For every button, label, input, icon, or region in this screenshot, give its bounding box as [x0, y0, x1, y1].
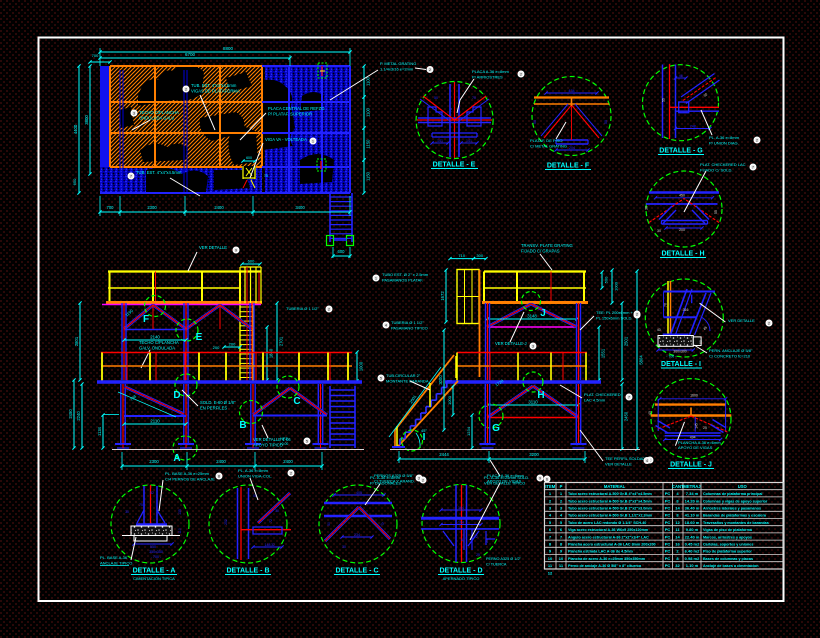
svg-text:1000: 1000 — [447, 395, 452, 405]
svg-text:Piso de plataforma superior: Piso de plataforma superior — [703, 550, 752, 554]
svg-text:1134: 1134 — [97, 426, 102, 436]
svg-text:350x350: 350x350 — [149, 550, 163, 554]
svg-text:1000: 1000 — [359, 361, 364, 371]
svg-text:TUB. EST. 4"x4"x4.5mm: TUB. EST. 4"x4"x4.5mm — [136, 170, 182, 175]
svg-text:DETALLE - D: DETALLE - D — [439, 568, 482, 575]
svg-text:Perno de anclaje A-36 Ø 5/8" x: Perno de anclaje A-36 Ø 5/8" x 8" c/tuer… — [568, 564, 642, 568]
svg-text:200: 200 — [679, 228, 685, 232]
svg-text:75: 75 — [139, 503, 143, 507]
svg-text:CANT: CANT — [672, 484, 684, 489]
svg-text:600: 600 — [246, 156, 252, 160]
svg-text:30: 30 — [275, 509, 279, 513]
svg-text:748: 748 — [690, 124, 696, 128]
svg-text:1150: 1150 — [366, 139, 371, 149]
svg-text:148: 148 — [265, 543, 271, 547]
svg-text:METRAJ: METRAJ — [683, 484, 701, 489]
svg-text:TUB.CIRCULAR 2": TUB.CIRCULAR 2" — [386, 373, 421, 378]
svg-text:1672: 1672 — [440, 291, 445, 301]
svg-text:Travesaños y montantes de bara: Travesaños y montantes de barandas — [703, 521, 769, 525]
svg-text:TUBO EST. Ø 2" x 2.5mm: TUBO EST. Ø 2" x 2.5mm — [382, 272, 429, 277]
svg-text:5: 5 — [380, 376, 382, 380]
svg-text:12: 12 — [675, 520, 680, 525]
svg-text:PLATAF. DE PISO: PLATAF. DE PISO — [530, 138, 563, 143]
svg-text:PL. A-36 e=8mm: PL. A-36 e=8mm — [370, 475, 401, 480]
svg-text:2110: 2110 — [150, 419, 160, 424]
svg-text:DETALLE - F: DETALLE - F — [547, 163, 590, 170]
svg-text:DETALLE - C: DETALLE - C — [335, 568, 378, 575]
svg-text:I: I — [423, 432, 426, 443]
svg-text:3200: 3200 — [529, 452, 539, 457]
svg-text:C: C — [293, 396, 300, 407]
svg-text:46: 46 — [679, 74, 683, 78]
svg-text:204: 204 — [569, 146, 575, 150]
svg-text:14.20 m: 14.20 m — [685, 498, 700, 503]
svg-text:APERNADO TIPICO: APERNADO TIPICO — [443, 576, 480, 581]
svg-text:P/ DIAGONALES: P/ DIAGONALES — [370, 480, 401, 485]
svg-text:- 700 -: - 700 - — [666, 355, 677, 359]
svg-text:2: 2 — [429, 68, 431, 72]
svg-text:Angulo acero estructural A-36: Angulo acero estructural A-36 2"x2"x1/4"… — [568, 535, 649, 539]
svg-text:16: 16 — [675, 542, 680, 547]
svg-text:2701: 2701 — [279, 336, 284, 346]
svg-text:1234: 1234 — [466, 426, 471, 436]
svg-text:3400: 3400 — [295, 205, 305, 210]
svg-text:TRANSV. PLATE GRATING: TRANSV. PLATE GRATING — [521, 243, 573, 248]
svg-text:1100: 1100 — [366, 107, 371, 117]
svg-text:J: J — [540, 308, 546, 319]
svg-text:70: 70 — [663, 303, 667, 307]
svg-text:2: 2 — [520, 72, 522, 76]
svg-text:234: 234 — [354, 533, 360, 537]
svg-text:PLACA CENTRAL DE REFZO.: PLACA CENTRAL DE REFZO. — [268, 106, 326, 111]
svg-text:494: 494 — [690, 436, 696, 440]
svg-text:8: 8 — [461, 538, 463, 542]
svg-text:18.60 m: 18.60 m — [685, 520, 700, 525]
svg-text:TUB. EST. 4"x4"x4.5mm: TUB. EST. 4"x4"x4.5mm — [191, 83, 237, 88]
svg-text:Columnas de plataforma princip: Columnas de plataforma principal — [703, 492, 762, 496]
svg-text:50: 50 — [699, 340, 703, 344]
svg-text:200: 200 — [229, 342, 236, 347]
svg-text:2: 2 — [636, 312, 638, 316]
svg-text:DETALLE - A: DETALLE - A — [133, 568, 176, 575]
svg-text:B: B — [239, 420, 246, 431]
svg-text:PC: PC — [665, 534, 671, 539]
svg-text:0.45 m2: 0.45 m2 — [685, 542, 700, 547]
svg-text:30: 30 — [342, 545, 346, 549]
svg-text:2450: 2450 — [68, 409, 73, 419]
svg-text:Columnas y vigas de apoyo supe: Columnas y vigas de apoyo superior — [703, 499, 768, 503]
svg-text:4: 4 — [385, 323, 387, 327]
svg-text:GALV. ONDULADA: GALV. ONDULADA — [139, 345, 175, 350]
svg-text:76: 76 — [449, 108, 453, 112]
svg-text:UNION VIGA-COL.: UNION VIGA-COL. — [238, 473, 272, 478]
svg-text:Marcos, arriostres y apoyos: Marcos, arriostres y apoyos — [703, 535, 752, 539]
svg-text:EN PERFILES: EN PERFILES — [200, 405, 227, 410]
svg-text:41.10 m: 41.10 m — [685, 513, 700, 518]
svg-text:30: 30 — [645, 206, 649, 210]
svg-text:2: 2 — [290, 471, 292, 475]
svg-text:VIGAS DE PLATAFORMA: VIGAS DE PLATAFORMA — [191, 88, 240, 93]
svg-text:ITEM: ITEM — [545, 484, 556, 489]
svg-text:2300: 2300 — [147, 205, 157, 210]
svg-text:C/ TUERCA: C/ TUERCA — [486, 562, 507, 566]
svg-text:6.40 m2: 6.40 m2 — [685, 549, 700, 554]
svg-text:PERN. ANCLAJE Ø 5/8": PERN. ANCLAJE Ø 5/8" — [709, 348, 753, 353]
svg-text:1: 1 — [312, 139, 314, 143]
svg-text:MATERIAL: MATERIAL — [604, 484, 626, 489]
svg-text:H: H — [537, 390, 544, 401]
svg-text:300x300: 300x300 — [673, 350, 686, 354]
svg-text:PL 150x6mm SOLD.: PL 150x6mm SOLD. — [596, 315, 633, 320]
svg-text:P/ PLATAF. SUPERIOR: P/ PLATAF. SUPERIOR — [268, 111, 312, 116]
svg-text:Plancha de acero A-36 e=25mm 3: Plancha de acero A-36 e=25mm 350x350mm — [568, 557, 646, 561]
svg-text:650: 650 — [72, 178, 77, 185]
svg-text:Barandas de plataformas y esca: Barandas de plataformas y escalera — [703, 514, 767, 518]
svg-text:PERNO A325 Ø 1/2": PERNO A325 Ø 1/2" — [486, 557, 522, 561]
svg-text:TEE: PL 200x6mm +: TEE: PL 200x6mm + — [596, 310, 634, 315]
svg-text:141: 141 — [466, 139, 472, 143]
svg-text:DETALLE - G: DETALLE - G — [659, 148, 703, 155]
svg-text:VER DETALLE 1-06: VER DETALLE 1-06 — [253, 437, 291, 442]
svg-text:ANCLAJE TIPICO: ANCLAJE TIPICO — [100, 560, 132, 565]
svg-text:P/ UNION DIAG.: P/ UNION DIAG. — [709, 140, 739, 145]
svg-text:14: 14 — [675, 506, 680, 511]
svg-text:141: 141 — [437, 139, 443, 143]
svg-text:VER DETALLE-J: VER DETALLE-J — [495, 341, 527, 346]
svg-text:TEE PERFIL SOLDADO: TEE PERFIL SOLDADO — [605, 456, 648, 461]
svg-text:8800: 8800 — [223, 46, 234, 51]
svg-text:7: 7 — [628, 395, 630, 399]
svg-text:E: E — [196, 332, 203, 343]
svg-text:1: 1 — [375, 276, 377, 280]
svg-text:PLAT. CHECKERED: PLAT. CHECKERED — [584, 392, 621, 397]
svg-text:32: 32 — [675, 563, 680, 568]
svg-text:1000: 1000 — [614, 281, 619, 291]
svg-text:70: 70 — [472, 96, 476, 100]
svg-text:3000: 3000 — [438, 375, 443, 385]
svg-text:Tubo acero estructural A-500 G: Tubo acero estructural A-500 Gr.B 4"x4"x… — [568, 492, 653, 496]
svg-text:Tubo acero estructural A-500 G: Tubo acero estructural A-500 Gr.B 3"x3"x… — [568, 499, 653, 503]
svg-text:Vigas de piso de plataforma: Vigas de piso de plataforma — [703, 528, 753, 532]
svg-text:PC: PC — [665, 498, 671, 503]
svg-text:PC: PC — [665, 542, 671, 547]
svg-text:Viga acero estructural A-36 W6: Viga acero estructural A-36 W6x9 250x120… — [568, 528, 649, 532]
svg-text:500: 500 — [604, 276, 609, 283]
svg-text:G: G — [492, 423, 500, 434]
svg-text:9: 9 — [235, 248, 237, 252]
svg-text:25: 25 — [476, 553, 480, 557]
svg-text:TUBERIA Ø 1 1/2": TUBERIA Ø 1 1/2" — [286, 306, 319, 311]
svg-text:PLAT. CHECKERED LAC: PLAT. CHECKERED LAC — [700, 162, 746, 167]
svg-text:30: 30 — [125, 510, 129, 514]
svg-text:135: 135 — [178, 509, 182, 515]
svg-text:6700: 6700 — [185, 52, 196, 57]
svg-text:55: 55 — [714, 210, 718, 214]
svg-text:A: A — [173, 453, 180, 464]
svg-text:3: 3 — [133, 111, 135, 115]
svg-text:DETALLE - E: DETALLE - E — [433, 162, 476, 169]
svg-text:2400: 2400 — [283, 459, 293, 464]
svg-text:200: 200 — [213, 345, 220, 350]
svg-text:7: 7 — [752, 165, 754, 169]
svg-text:50: 50 — [533, 120, 537, 124]
svg-text:SOLD. E-60 Ø 1/8": SOLD. E-60 Ø 1/8" — [200, 400, 236, 405]
svg-text:2: 2 — [328, 307, 330, 311]
svg-text:2: 2 — [422, 478, 424, 482]
svg-text:9: 9 — [539, 476, 541, 480]
svg-text:600: 600 — [248, 259, 255, 264]
svg-text:Anclaje de bases a cimentacion: Anclaje de bases a cimentacion — [703, 564, 759, 568]
svg-text:2400: 2400 — [216, 459, 226, 464]
svg-text:PC: PC — [665, 563, 671, 568]
svg-text:1.10 m: 1.10 m — [686, 563, 699, 568]
svg-text:C/ METAL GRATING: C/ METAL GRATING — [530, 143, 567, 148]
svg-text:0.98 m2: 0.98 m2 — [685, 556, 700, 561]
svg-text:P. METAL GRATING: P. METAL GRATING — [380, 61, 416, 66]
svg-text:1150: 1150 — [366, 171, 371, 181]
svg-text:APOYO DE VIGAS: APOYO DE VIGAS — [678, 445, 713, 450]
svg-text:F: F — [143, 314, 149, 325]
svg-text:DETALLE - B: DETALLE - B — [226, 568, 269, 575]
svg-text:FIJADO C/ GRAPAS: FIJADO C/ GRAPAS — [521, 248, 560, 253]
svg-text:PC: PC — [665, 549, 671, 554]
svg-text:PASAMANO TIPICO: PASAMANO TIPICO — [391, 325, 428, 330]
svg-text:FIJADO C/ SOLD.: FIJADO C/ SOLD. — [700, 167, 732, 172]
svg-text:Cartelas, soportes y uniones: Cartelas, soportes y uniones — [703, 543, 753, 547]
svg-text:22.40 m: 22.40 m — [685, 534, 700, 539]
svg-text:Tubo acero estructural A-500 G: Tubo acero estructural A-500 Gr.B 2"x2"x… — [568, 507, 653, 511]
svg-text:Tubo acero estructural A-500 G: Tubo acero estructural A-500 Gr.B 1.1/2"… — [568, 514, 653, 518]
svg-text:Tubo de acero LAC redondo Ø 1.: Tubo de acero LAC redondo Ø 1.1/4" SCH-4… — [568, 521, 646, 525]
svg-text:2: 2 — [768, 321, 770, 325]
svg-text:Bases de columnas y placas: Bases de columnas y placas — [703, 557, 753, 561]
svg-text:3: 3 — [532, 344, 534, 348]
svg-text:25: 25 — [485, 539, 489, 543]
svg-text:2444: 2444 — [439, 452, 449, 457]
svg-text:3800: 3800 — [84, 115, 89, 125]
svg-text:- 700 -: - 700 - — [151, 555, 162, 559]
svg-text:40: 40 — [657, 328, 661, 332]
svg-text:VER DETALLE: VER DETALLE — [605, 461, 632, 466]
svg-text:PLACA A-36 e=6mm: PLACA A-36 e=6mm — [487, 473, 524, 478]
svg-text:164: 164 — [458, 520, 464, 524]
svg-text:VER DETALLE: VER DETALLE — [728, 318, 755, 323]
svg-text:2400: 2400 — [214, 205, 224, 210]
svg-text:APOYO TIPICO: APOYO TIPICO — [253, 442, 284, 447]
svg-text:316: 316 — [683, 308, 689, 312]
svg-text:8: 8 — [218, 474, 220, 478]
svg-text:PC: PC — [665, 513, 671, 518]
svg-text:5804: 5804 — [639, 355, 644, 365]
svg-text:145: 145 — [695, 423, 699, 429]
svg-text:252: 252 — [224, 519, 228, 525]
svg-text:PC: PC — [665, 506, 671, 511]
svg-text:2: 2 — [185, 87, 187, 91]
svg-text:110: 110 — [178, 528, 182, 534]
svg-text:PC: PC — [665, 520, 671, 525]
svg-text:2: 2 — [756, 138, 758, 142]
svg-text:32: 32 — [271, 543, 275, 547]
svg-text:PC: PC — [665, 491, 671, 496]
svg-text:LAC 4.5mm: LAC 4.5mm — [584, 397, 606, 402]
svg-text:1600: 1600 — [690, 394, 698, 398]
svg-text:5: 5 — [306, 439, 308, 443]
svg-text:50: 50 — [604, 120, 608, 124]
svg-text:14: 14 — [675, 534, 680, 539]
svg-text:MONTANTE BARANDA: MONTANTE BARANDA — [386, 378, 429, 383]
svg-text:Arriostres laterales y pasaman: Arriostres laterales y pasamanos — [703, 507, 761, 511]
svg-text:36.40 m: 36.40 m — [685, 506, 700, 511]
svg-text:DETALLE - H: DETALLE - H — [661, 251, 704, 258]
svg-text:TECHO C/PLANCHA: TECHO C/PLANCHA — [139, 340, 179, 345]
svg-text:D: D — [173, 390, 180, 401]
svg-text:PC: PC — [665, 556, 671, 561]
svg-text:TECHO C/PLANCHA: TECHO C/PLANCHA — [139, 110, 179, 115]
svg-text:C/ CONCRETO fc=210: C/ CONCRETO fc=210 — [709, 353, 751, 358]
svg-text:APOYO DE VIGAS: APOYO DE VIGAS — [487, 478, 522, 483]
svg-text:710: 710 — [458, 253, 465, 258]
svg-text:6: 6 — [546, 477, 548, 481]
svg-text:3148: 3148 — [527, 314, 537, 319]
svg-text:2450: 2450 — [624, 411, 629, 421]
svg-text:2501: 2501 — [624, 336, 629, 346]
svg-text:PL. A-36 e=8mm: PL. A-36 e=8mm — [238, 468, 269, 473]
svg-text:450: 450 — [679, 194, 685, 198]
svg-text:52: 52 — [150, 491, 154, 495]
svg-text:700: 700 — [92, 53, 99, 58]
svg-text:10: 10 — [559, 556, 564, 561]
svg-text:PL. BASE A-36: PL. BASE A-36 — [100, 555, 128, 560]
svg-text:164: 164 — [458, 506, 464, 510]
svg-text:7: 7 — [130, 174, 132, 178]
svg-text:PL. BASE A-36 e=25mm: PL. BASE A-36 e=25mm — [165, 471, 210, 476]
svg-text:1.1/4x3/16 e=2mm: 1.1/4x3/16 e=2mm — [380, 66, 414, 71]
svg-text:550: 550 — [150, 545, 156, 549]
svg-text:600: 600 — [338, 249, 346, 254]
svg-text:2240: 2240 — [76, 411, 81, 421]
svg-text:2801: 2801 — [74, 336, 79, 346]
svg-text:40: 40 — [648, 411, 652, 415]
svg-text:12: 12 — [548, 570, 553, 575]
svg-text:PLACA A-36 e=8mm: PLACA A-36 e=8mm — [472, 69, 509, 74]
svg-text:300: 300 — [476, 253, 483, 258]
svg-text:P: P — [560, 484, 563, 489]
svg-text:4400: 4400 — [73, 124, 78, 134]
svg-text:9.80 m: 9.80 m — [686, 527, 699, 532]
svg-text:Plancha acero estructural A-36: Plancha acero estructural A-36 LAC 8mm 2… — [568, 543, 656, 547]
svg-text:1551: 1551 — [601, 348, 606, 358]
svg-text:50: 50 — [434, 96, 438, 100]
svg-text:72: 72 — [269, 519, 273, 523]
svg-text:PASAMANOS PLATAF.: PASAMANOS PLATAF. — [382, 277, 423, 282]
svg-text:2300: 2300 — [149, 459, 159, 464]
svg-text:TUBERIA Ø 1 1/2": TUBERIA Ø 1 1/2" — [391, 320, 424, 325]
svg-text:Plancha estriada LAC A-36 de 4: Plancha estriada LAC A-36 de 4.5mm — [568, 550, 634, 554]
svg-text:DETALLE - I: DETALLE - I — [661, 361, 701, 368]
svg-text:ONDULADA GALV.: ONDULADA GALV. — [139, 115, 175, 120]
svg-text:4: 4 — [646, 459, 648, 463]
svg-text:25: 25 — [703, 426, 707, 430]
svg-text:VER DETALLE: VER DETALLE — [199, 245, 227, 250]
svg-text:75: 75 — [264, 174, 268, 178]
svg-text:434: 434 — [568, 89, 574, 93]
svg-text:CIMENTACION TIPICA: CIMENTACION TIPICA — [133, 576, 175, 581]
svg-text:C/4 PERNOS DE ANCLAJE: C/4 PERNOS DE ANCLAJE — [165, 476, 215, 481]
svg-text:30: 30 — [657, 229, 661, 233]
svg-text:700: 700 — [107, 205, 115, 210]
svg-text:DETALLE - J: DETALLE - J — [670, 462, 712, 469]
svg-text:PL. A-36 e=8mm: PL. A-36 e=8mm — [709, 135, 740, 140]
svg-text:USO: USO — [738, 484, 748, 489]
svg-text:PC: PC — [665, 527, 671, 532]
svg-text:10: 10 — [548, 556, 553, 561]
svg-text:405: 405 — [356, 491, 362, 495]
svg-text:7.34 m: 7.34 m — [686, 491, 699, 496]
svg-text:P/ ARRIOSTRES: P/ ARRIOSTRES — [472, 74, 503, 79]
svg-text:VIGA VA - VOLTEADA: VIGA VA - VOLTEADA — [265, 137, 307, 142]
svg-text:2140: 2140 — [150, 335, 160, 340]
svg-text:50: 50 — [327, 522, 331, 526]
svg-text:55: 55 — [662, 98, 666, 102]
